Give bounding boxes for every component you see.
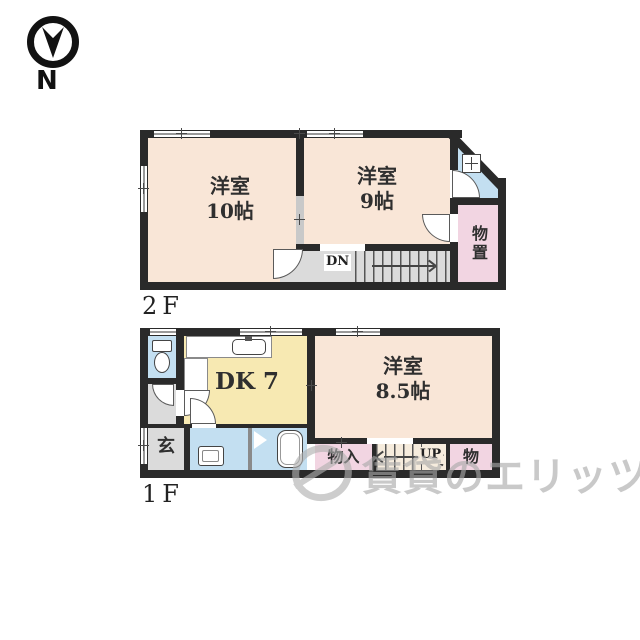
wall-2f-right bbox=[498, 178, 506, 290]
kitchen-tap-icon bbox=[245, 336, 252, 341]
watermark-logo-icon bbox=[286, 439, 358, 508]
room-west9-line2: 9帖 bbox=[312, 189, 442, 214]
tick-mark bbox=[294, 128, 305, 139]
compass-needle-icon bbox=[40, 27, 66, 58]
tick-mark bbox=[352, 326, 363, 337]
room-west10-line2: 10帖 bbox=[165, 199, 295, 224]
kitchen-sink-icon bbox=[232, 339, 266, 355]
stairs-direction-line bbox=[372, 265, 434, 267]
room-west9-line1: 洋室 bbox=[312, 164, 442, 189]
room-west85-line2: 8.5帖 bbox=[343, 379, 463, 404]
tick-mark bbox=[176, 128, 187, 139]
toilet-bowl-icon bbox=[154, 352, 170, 373]
compass-icon bbox=[27, 16, 79, 68]
wall-1f-top bbox=[140, 328, 500, 336]
washing-machine-pan-icon bbox=[462, 154, 481, 173]
room-west85-label: 洋室 8.5帖 bbox=[343, 354, 463, 404]
wall-genkan-right bbox=[184, 424, 190, 470]
room-west85-line1: 洋室 bbox=[343, 354, 463, 379]
wall-2f-toilet-monooki bbox=[458, 198, 498, 205]
floorplan-page: N DN bbox=[0, 0, 640, 640]
wall-2f-strip bbox=[450, 138, 458, 282]
floor-2f-label: 2F bbox=[142, 292, 184, 320]
compass-north-label: N bbox=[36, 66, 58, 96]
washbasin-inner bbox=[202, 450, 219, 462]
room-dk-label: DK 7 bbox=[202, 368, 292, 397]
dk-door-gap bbox=[176, 390, 184, 416]
toilet-tank-icon bbox=[152, 340, 172, 352]
tick-mark bbox=[294, 214, 305, 225]
floorplan-2f: DN 洋室 10帖 洋室 9帖 物置 bbox=[140, 130, 506, 290]
washroom-door-gap bbox=[192, 424, 216, 428]
room-west10-label: 洋室 10帖 bbox=[165, 174, 295, 224]
stair-opening-2f bbox=[320, 244, 365, 251]
tick-mark bbox=[138, 440, 149, 451]
room-west10-line1: 洋室 bbox=[165, 174, 295, 199]
monooki-door-gap bbox=[450, 214, 458, 242]
tick-mark bbox=[306, 380, 317, 391]
room-monooki-label: 物置 bbox=[458, 205, 498, 282]
tick-mark bbox=[329, 128, 340, 139]
wall-genkan-top bbox=[148, 424, 184, 428]
stairs-arrow-icon bbox=[426, 259, 436, 271]
partition-washroom-bath bbox=[248, 428, 252, 470]
room-genkan-label: 玄 bbox=[152, 436, 180, 459]
watermark-text: 賃貸のエリッツ bbox=[362, 444, 640, 502]
stairs-dn-label: DN bbox=[324, 254, 351, 271]
window-1f-toilet bbox=[150, 328, 176, 336]
floor-1f-label: 1F bbox=[142, 480, 184, 508]
tick-mark bbox=[138, 183, 149, 194]
compass: N bbox=[0, 0, 100, 100]
room-west9-label: 洋室 9帖 bbox=[312, 164, 442, 214]
watermark: 賃貸のエリッツ bbox=[292, 444, 640, 502]
wall-2f-bottom bbox=[140, 282, 506, 290]
